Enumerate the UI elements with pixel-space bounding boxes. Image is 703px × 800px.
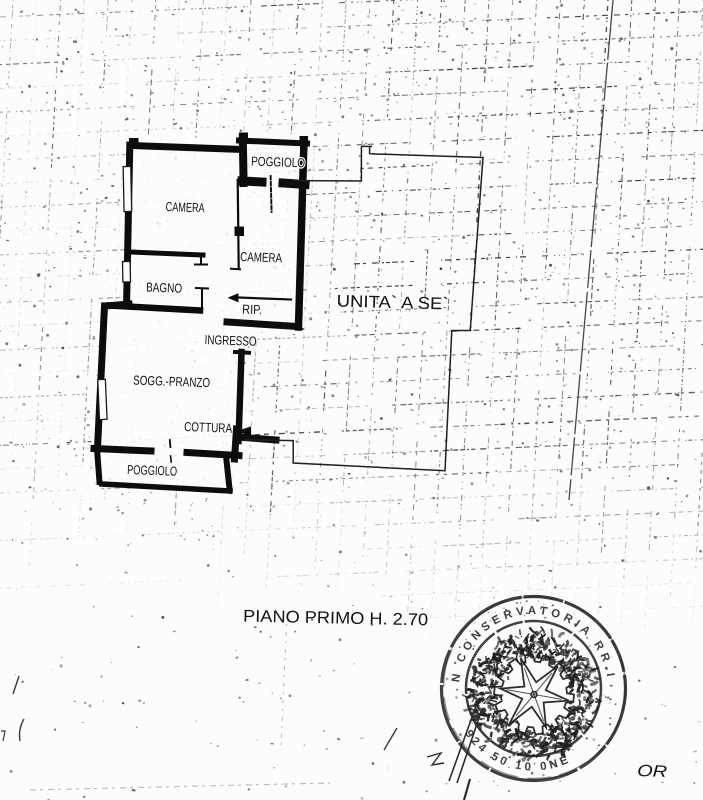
- svg-text:INGRESSO: INGRESSO: [204, 332, 256, 349]
- svg-text:CAMERA: CAMERA: [240, 249, 283, 265]
- svg-text:COTTURA: COTTURA: [184, 419, 233, 436]
- svg-text:RIP.: RIP.: [242, 302, 263, 318]
- svg-text:POGGIOLO: POGGIOLO: [127, 462, 177, 479]
- svg-text:BAGNO: BAGNO: [146, 280, 183, 296]
- svg-text:POGGIOLO: POGGIOLO: [251, 154, 305, 171]
- svg-text:SOGG.-PRANZO: SOGG.-PRANZO: [133, 373, 210, 391]
- svg-text:CAMERA: CAMERA: [165, 199, 205, 215]
- svg-text:UNITA` A SE`: UNITA` A SE`: [336, 292, 448, 314]
- svg-text:PIANO PRIMO H. 2.70: PIANO PRIMO H. 2.70: [243, 607, 428, 630]
- svg-text:OR: OR: [637, 762, 668, 781]
